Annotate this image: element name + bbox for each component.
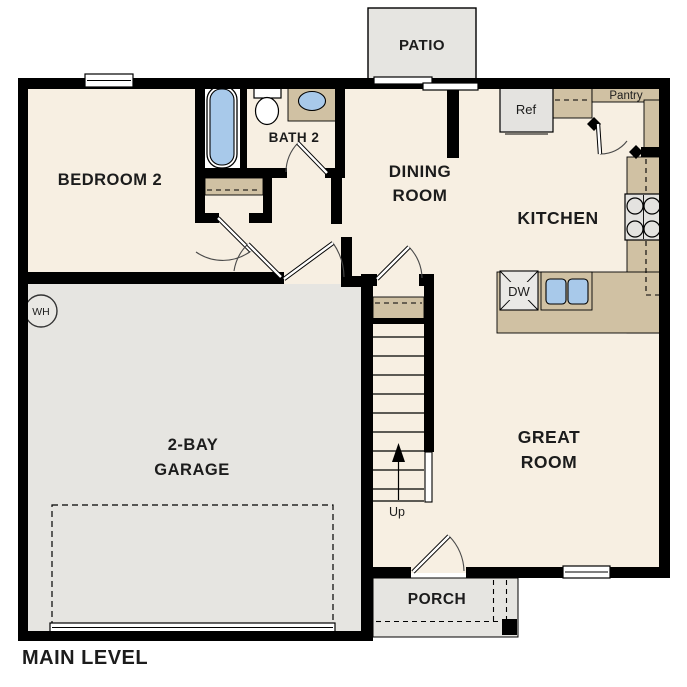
level-title: MAIN LEVEL: [22, 647, 148, 669]
wall-garage-right: [361, 276, 373, 641]
wall-closet-south-e: [249, 213, 272, 223]
wall-left: [18, 78, 28, 641]
room-label-garage-line2: GARAGE: [154, 461, 229, 479]
kitchen-counter-top: [553, 88, 592, 118]
fixture-label-ref: Ref: [516, 102, 537, 117]
bedroom-closet-shelf: [205, 178, 263, 195]
room-label-pantry: Pantry: [609, 90, 642, 102]
wall-garage-bottom: [18, 631, 373, 641]
room-label-dining-line1: DINING: [389, 162, 452, 181]
wall-bath-south: [195, 168, 287, 178]
pantry-shelf-right: [644, 100, 660, 148]
wall-pantry-south: [641, 147, 660, 157]
room-label-patio: PATIO: [399, 37, 445, 54]
room-label-bath2: BATH 2: [269, 130, 320, 145]
wall-dining-southwest: [341, 237, 352, 287]
bathtub: [210, 89, 234, 165]
room-label-porch: PORCH: [408, 591, 466, 608]
fixture-label-dw: DW: [508, 284, 530, 299]
room-label-great-line2: ROOM: [521, 452, 577, 472]
room-label-kitchen: KITCHEN: [517, 208, 598, 228]
wall-closet-south-w: [195, 213, 219, 223]
room-label-great-line1: GREAT: [518, 427, 580, 447]
kitchen-sink-basin-left: [546, 279, 566, 304]
floor-plan-page: BEDROOM 2 BATH 2 DINING ROOM KITCHEN GRE…: [0, 0, 687, 687]
wall-hall-stub: [331, 178, 342, 224]
coat-closet-shelf: [373, 297, 424, 320]
wall-garage-north: [18, 272, 284, 284]
stove-burner: [644, 198, 660, 214]
kitchen-sink-basin-right: [568, 279, 588, 304]
wall-coat-closet-divider: [373, 318, 424, 324]
toilet-bowl: [256, 98, 279, 125]
room-label-dining-line2: ROOM: [393, 186, 448, 205]
fixture-label-wh: WH: [32, 306, 50, 318]
floor-plan-drawing: BEDROOM 2 BATH 2 DINING ROOM KITCHEN GRE…: [0, 0, 687, 687]
stove-burner: [644, 221, 660, 237]
wall-stairs-east: [424, 274, 434, 452]
wall-front-c: [610, 567, 669, 578]
patio-slider-panel-right: [423, 83, 478, 90]
wall-tub-divider: [240, 83, 247, 173]
garage-floor: [28, 284, 361, 631]
room-label-garage-line1: 2-BAY: [168, 436, 219, 454]
stair-railing: [425, 452, 432, 502]
stove-burner: [627, 221, 643, 237]
wall-bath-east: [335, 78, 345, 178]
room-label-bedroom2: BEDROOM 2: [58, 171, 162, 189]
stairs-up-label: Up: [389, 505, 405, 519]
porch-post: [502, 619, 517, 635]
wall-front-b: [466, 567, 563, 578]
wall-stairs-north-stub-e: [419, 274, 434, 286]
bath-sink: [299, 92, 326, 111]
stove-burner: [627, 198, 643, 214]
wall-stairs-north-stub-w: [361, 274, 377, 286]
wall-bedroom-bath-divider: [195, 78, 205, 223]
wall-right: [659, 78, 670, 578]
